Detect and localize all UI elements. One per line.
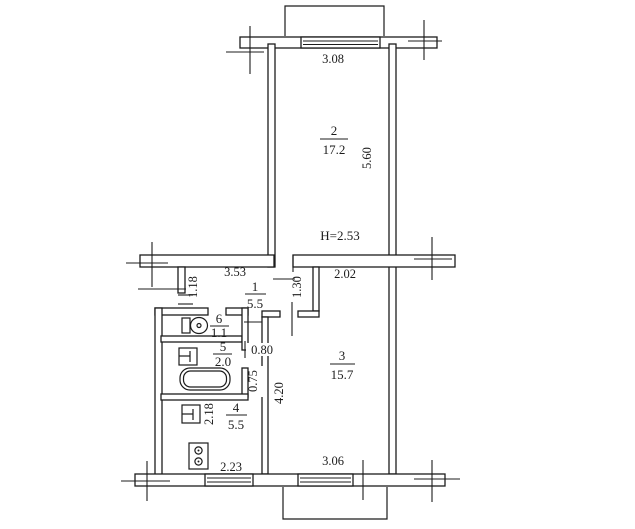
washbasin-icon (179, 348, 197, 365)
room-1-number: 1 (252, 279, 259, 294)
room-4-number: 4 (233, 400, 240, 415)
wall-wc-bath-divider (161, 336, 242, 342)
walls (121, 20, 460, 502)
dim-kitchen-depth: 2.18 (202, 403, 216, 425)
room-6-number: 6 (216, 311, 223, 326)
bottom-balcony-outline (283, 487, 387, 519)
wall-room1-room3-divider (313, 267, 319, 311)
room-6-area: 1.1 (211, 325, 227, 340)
dim-room1-nook: 1.30 (290, 276, 304, 298)
wall-middle-left-part (140, 255, 274, 267)
kitchen-sink-icon (182, 405, 200, 423)
room-2-number: 2 (331, 123, 338, 138)
room-3-area: 15.7 (331, 367, 354, 382)
wall-room3-jog-right (298, 311, 319, 317)
room-1-area: 5.5 (247, 296, 263, 311)
toilet-icon (182, 318, 208, 334)
window-room3 (298, 474, 353, 486)
bathtub-icon (180, 368, 230, 390)
top-balcony-outline (285, 6, 384, 36)
room-2-area: 17.2 (323, 142, 346, 157)
dim-corridor-depth: 0.75 (246, 370, 260, 392)
floor-plan-page: 3.08 5.60 H=2.53 3.53 2.02 1.18 1.30 0.8… (0, 0, 635, 529)
dim-room3-upper-width: 2.02 (334, 267, 356, 281)
wall-bottom (135, 474, 445, 486)
wall-outer-left-lower (155, 308, 162, 476)
room-3-number: 3 (339, 348, 346, 363)
room-4-area: 5.5 (228, 417, 244, 432)
wall-middle-right-part (293, 255, 455, 267)
window-kitchen (205, 474, 253, 486)
room-5-area: 2.0 (215, 354, 231, 369)
ceiling-height-label: H=2.53 (320, 228, 359, 243)
dim-top-window: 3.08 (322, 52, 344, 66)
dim-hall-depth: 1.18 (186, 276, 200, 298)
stove-icon (189, 443, 208, 469)
wall-room2-left (268, 44, 275, 267)
dim-kitchen-window: 2.23 (220, 460, 242, 474)
dim-room3-window: 3.06 (322, 454, 344, 468)
floor-plan-drawing: 3.08 5.60 H=2.53 3.53 2.02 1.18 1.30 0.8… (0, 0, 635, 529)
dim-room3-depth: 4.20 (272, 382, 286, 404)
wall-room3-jog-left (262, 311, 280, 317)
room-5-number: 5 (220, 339, 227, 354)
dim-room2-depth: 5.60 (360, 147, 374, 169)
dim-corridor-width: 0.80 (251, 343, 273, 357)
dim-hall-width: 3.53 (224, 265, 246, 279)
wall-wc-top-left (155, 308, 208, 315)
window-top (301, 37, 380, 48)
